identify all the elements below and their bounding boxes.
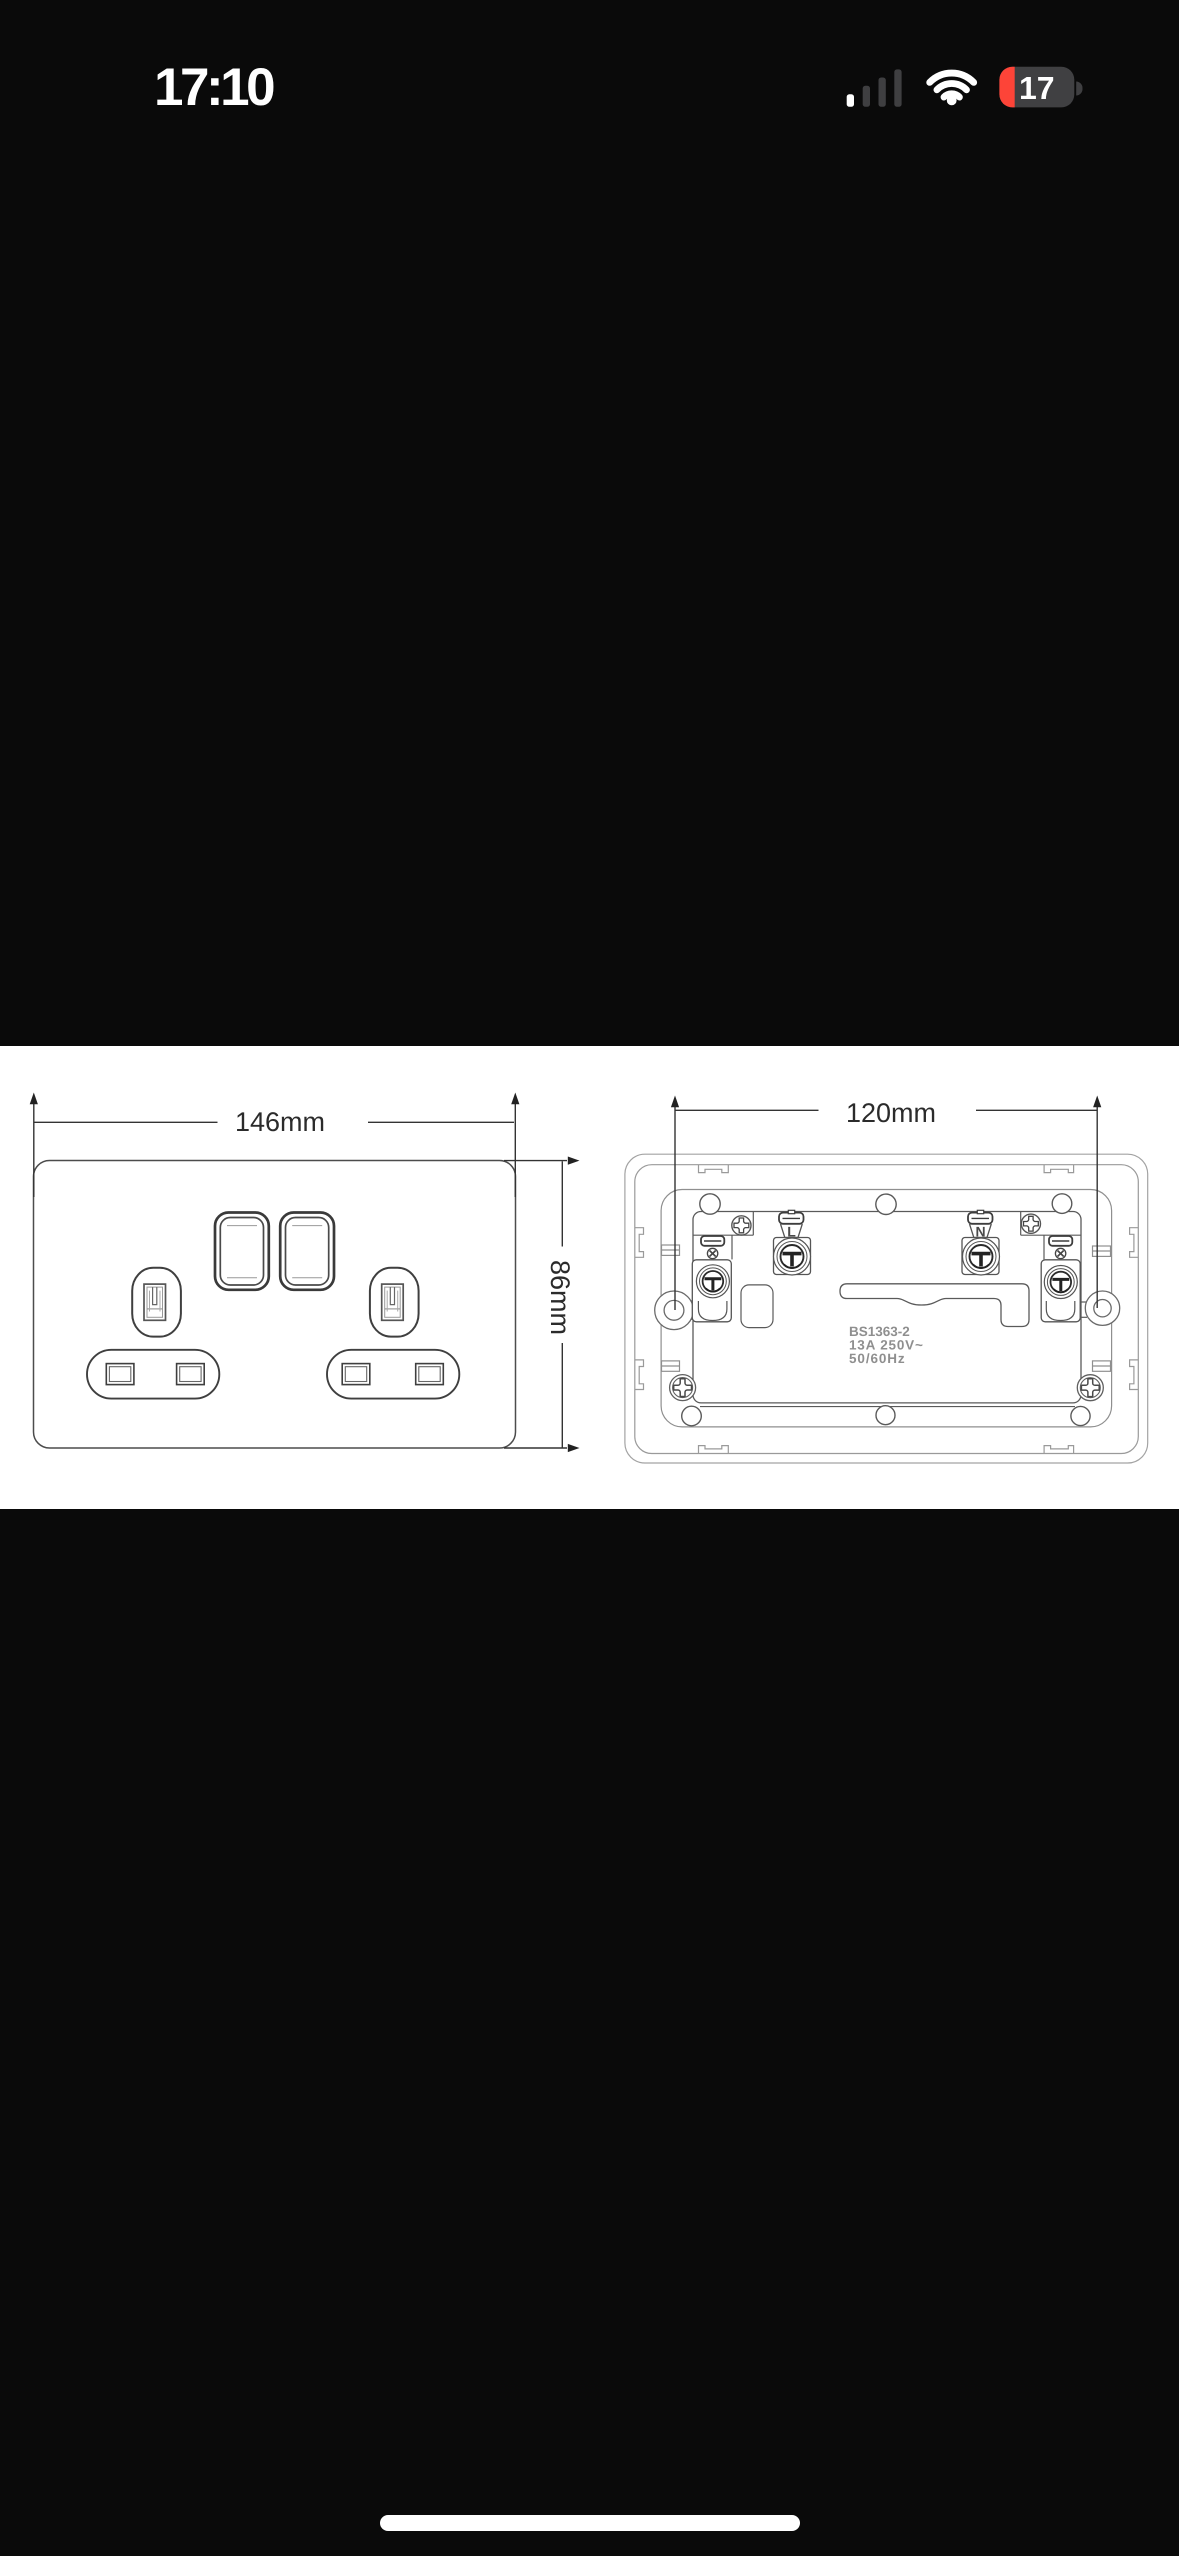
svg-text:50/60Hz: 50/60Hz (849, 1351, 906, 1366)
svg-text:17: 17 (1019, 70, 1055, 106)
svg-text:120mm: 120mm (846, 1098, 936, 1128)
svg-text:146mm: 146mm (235, 1107, 325, 1137)
svg-text:86mm: 86mm (545, 1260, 575, 1335)
